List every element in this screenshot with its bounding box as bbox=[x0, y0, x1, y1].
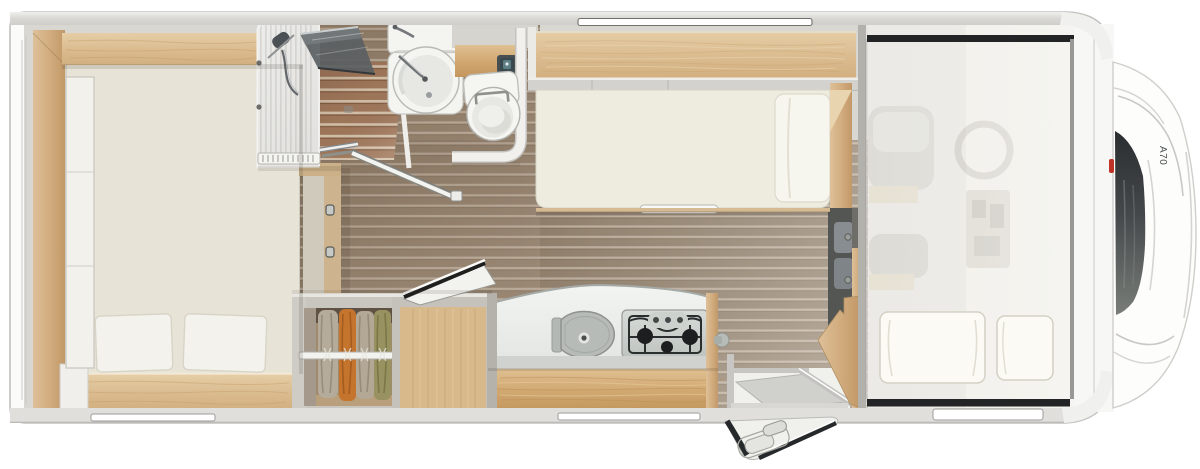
svg-text:A70: A70 bbox=[1157, 146, 1168, 165]
